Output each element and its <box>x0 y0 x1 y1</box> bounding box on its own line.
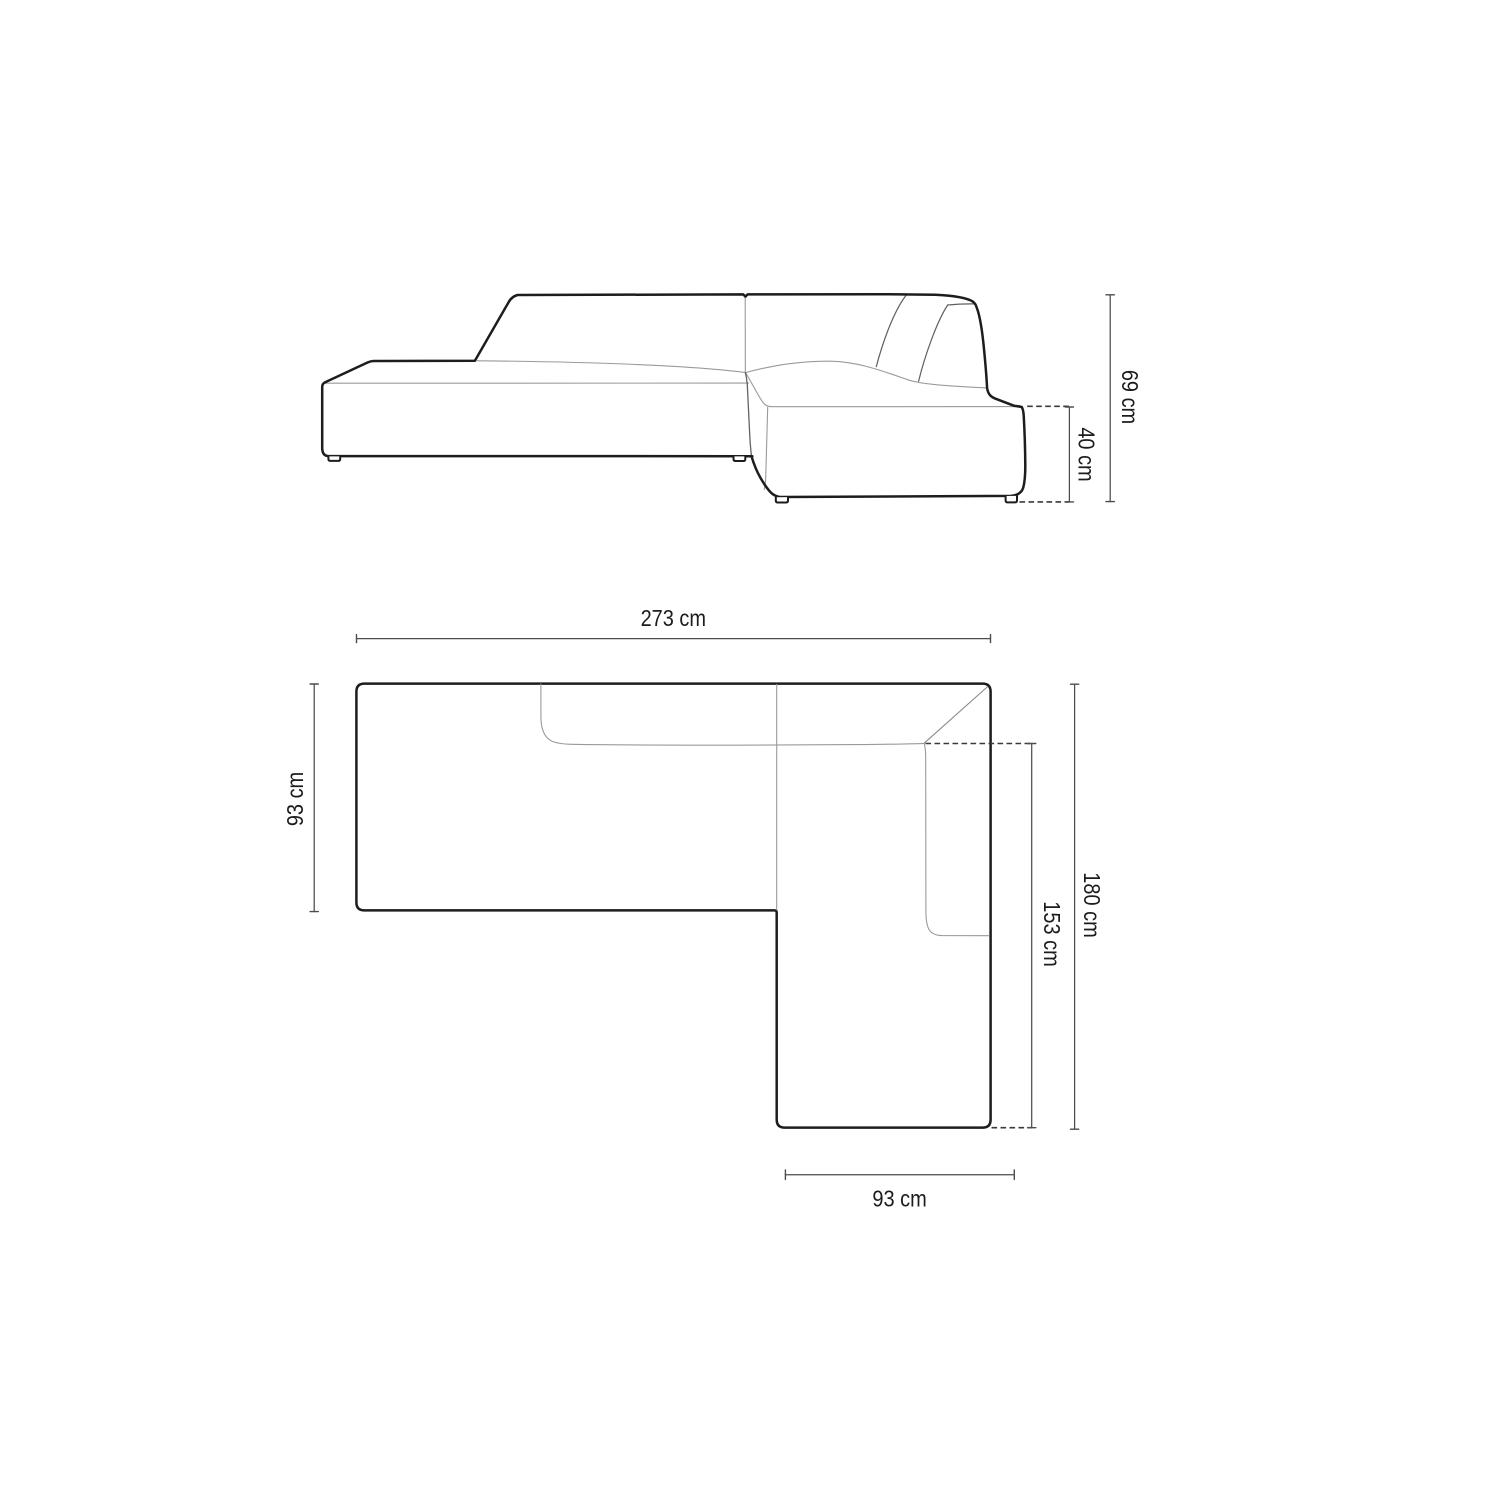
svg-text:93 cm: 93 cm <box>872 1185 926 1212</box>
svg-text:69 cm: 69 cm <box>1117 370 1144 424</box>
svg-text:40 cm: 40 cm <box>1073 427 1100 481</box>
svg-text:93 cm: 93 cm <box>282 772 309 826</box>
svg-text:273 cm: 273 cm <box>641 604 706 631</box>
svg-text:180 cm: 180 cm <box>1078 872 1105 937</box>
svg-text:153 cm: 153 cm <box>1038 901 1065 966</box>
